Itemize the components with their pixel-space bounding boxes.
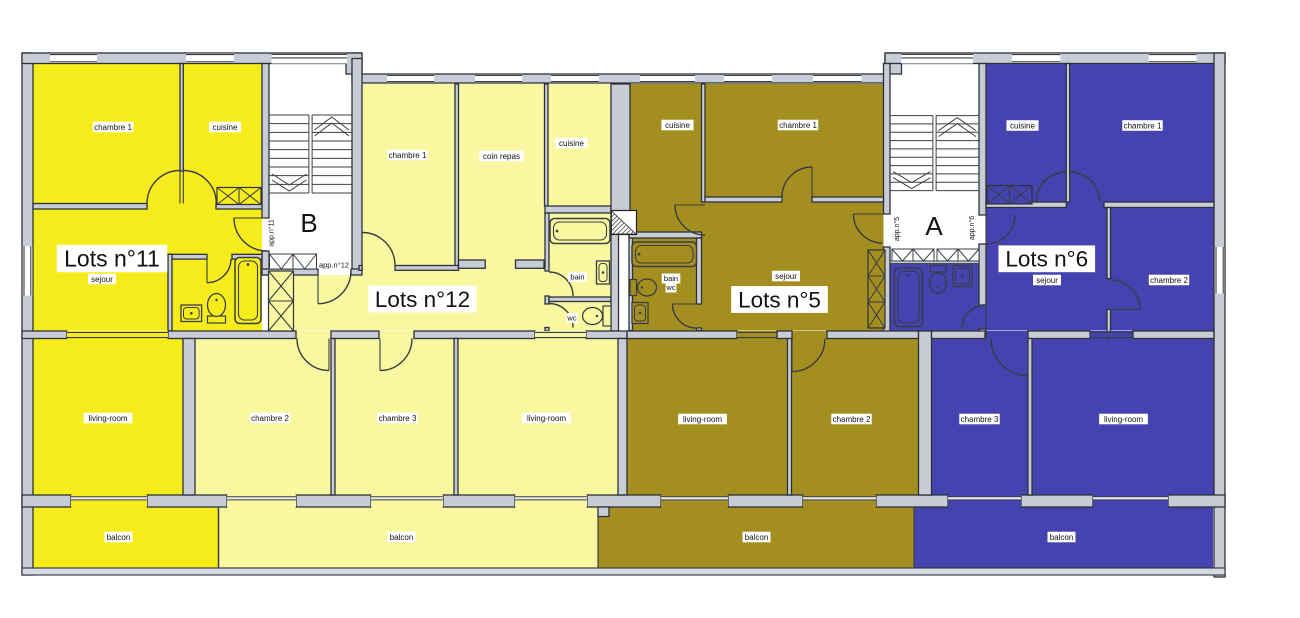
svg-text:B: B (300, 208, 317, 238)
svg-text:cuisine: cuisine (665, 121, 690, 130)
svg-text:bain: bain (570, 273, 584, 282)
svg-text:sejour: sejour (775, 272, 797, 281)
svg-text:living-room: living-room (527, 414, 566, 423)
svg-text:cuisine: cuisine (559, 139, 584, 148)
svg-text:Lots n°6: Lots n°6 (1005, 247, 1088, 272)
svg-text:wc: wc (665, 283, 675, 292)
svg-text:Lots n°11: Lots n°11 (64, 246, 160, 272)
svg-text:app.n°5: app.n°5 (893, 217, 901, 241)
svg-text:app.n°6: app.n°6 (968, 216, 976, 240)
svg-text:balcon: balcon (745, 533, 769, 542)
svg-text:chambre 3: chambre 3 (961, 415, 999, 424)
svg-text:living-room: living-room (683, 415, 722, 424)
svg-text:chambre 2: chambre 2 (833, 415, 871, 424)
svg-text:cuisine: cuisine (1010, 121, 1035, 130)
svg-text:app.n°11: app.n°11 (268, 219, 276, 247)
svg-text:cuisine: cuisine (213, 123, 238, 132)
svg-text:sejour: sejour (91, 275, 113, 284)
svg-text:coin repas: coin repas (483, 152, 520, 161)
svg-text:balcon: balcon (390, 533, 414, 542)
svg-text:chambre 1: chambre 1 (389, 151, 427, 160)
svg-text:app.n°12: app.n°12 (319, 261, 349, 270)
svg-text:wc: wc (566, 314, 576, 323)
svg-text:bain: bain (664, 274, 678, 283)
svg-text:balcon: balcon (1050, 533, 1074, 542)
svg-text:sejour: sejour (1036, 276, 1058, 285)
svg-text:chambre 1: chambre 1 (1124, 121, 1162, 130)
svg-text:chambre 2: chambre 2 (1150, 276, 1188, 285)
svg-text:living-room: living-room (1104, 415, 1143, 424)
svg-text:A: A (925, 211, 943, 241)
svg-text:chambre 3: chambre 3 (379, 414, 417, 423)
svg-text:living-room: living-room (88, 414, 127, 423)
svg-text:chambre 2: chambre 2 (251, 414, 289, 423)
svg-text:chambre 1: chambre 1 (94, 123, 132, 132)
svg-text:Lots n°5: Lots n°5 (738, 287, 821, 312)
svg-text:balcon: balcon (107, 533, 131, 542)
svg-text:chambre 1: chambre 1 (779, 121, 817, 130)
svg-text:Lots n°12: Lots n°12 (375, 287, 470, 312)
